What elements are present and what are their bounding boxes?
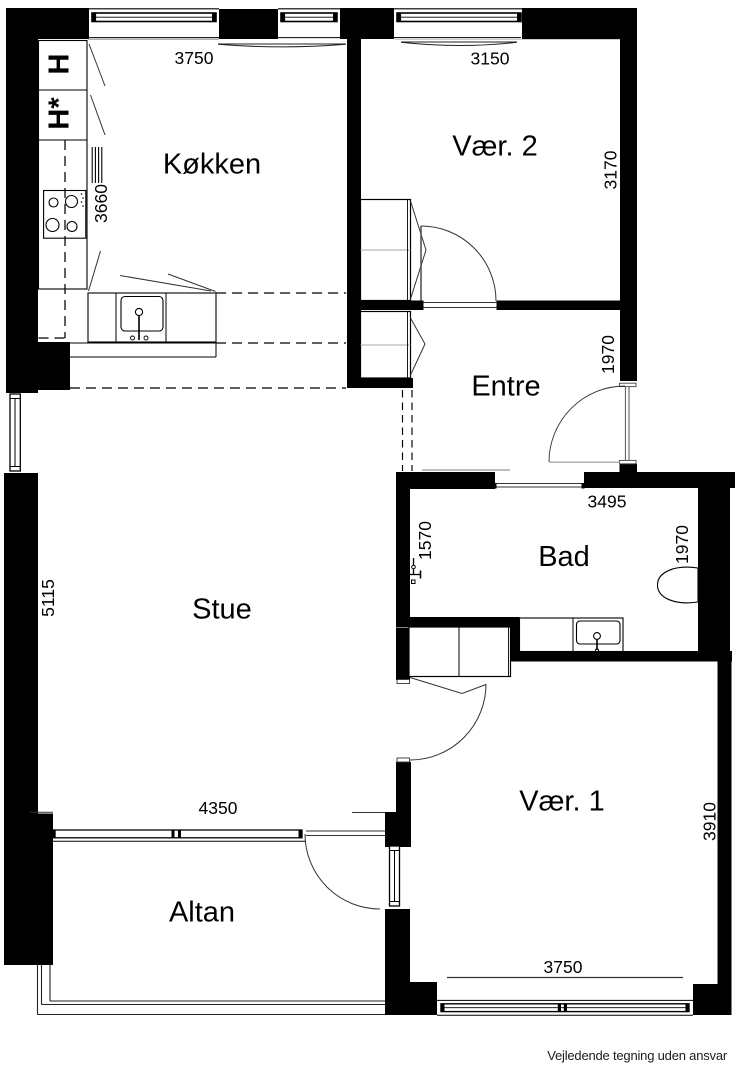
svg-text:4350: 4350 — [199, 798, 238, 818]
svg-text:1970: 1970 — [672, 525, 692, 564]
svg-text:H*: H* — [44, 97, 76, 130]
svg-text:H: H — [44, 54, 76, 75]
svg-text:3750: 3750 — [544, 957, 583, 977]
svg-text:Entre: Entre — [471, 371, 540, 403]
svg-text:1970: 1970 — [598, 335, 618, 374]
svg-text:3150: 3150 — [471, 49, 510, 69]
svg-text:Vær. 1: Vær. 1 — [519, 786, 604, 818]
svg-text:5115: 5115 — [38, 579, 58, 617]
svg-text:1570: 1570 — [415, 521, 435, 560]
svg-text:3750: 3750 — [175, 48, 214, 68]
svg-text:Stue: Stue — [192, 594, 252, 626]
svg-text:Altan: Altan — [169, 897, 235, 929]
svg-text:Vær. 2: Vær. 2 — [452, 131, 537, 163]
svg-text:Vejledende tegning uden ansvar: Vejledende tegning uden ansvar — [547, 1048, 728, 1063]
svg-text:3660: 3660 — [91, 184, 111, 223]
svg-text:Køkken: Køkken — [163, 149, 261, 181]
svg-text:3170: 3170 — [601, 150, 621, 189]
svg-text:3495: 3495 — [588, 492, 627, 512]
svg-text:3910: 3910 — [700, 802, 720, 841]
svg-text:Bad: Bad — [538, 541, 590, 573]
